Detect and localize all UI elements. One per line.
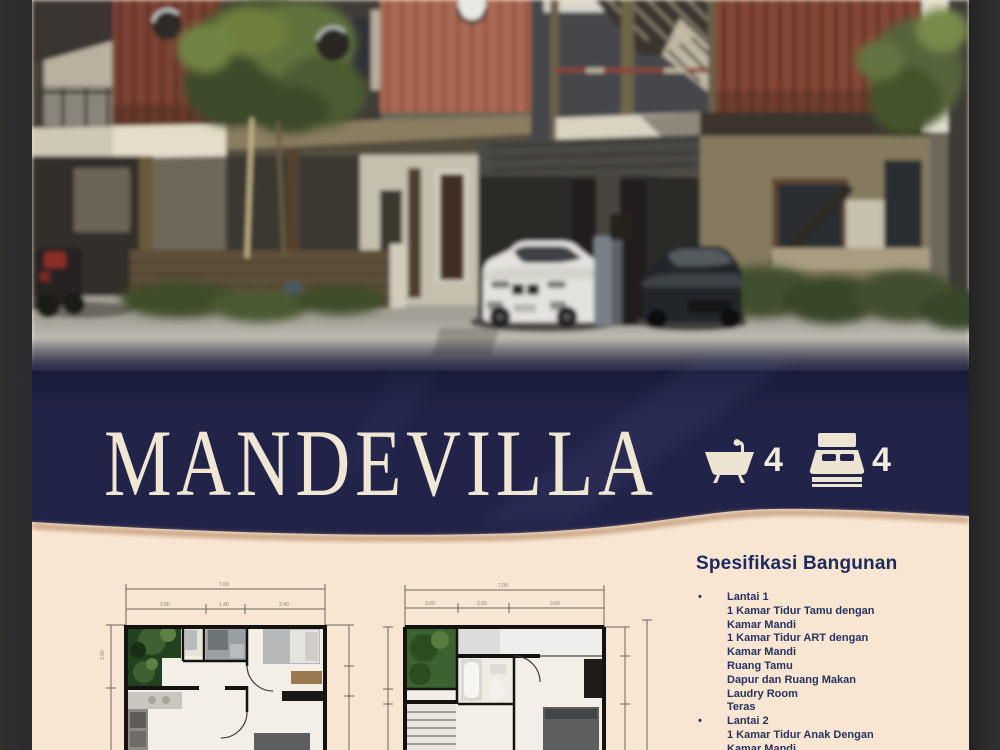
svg-text:4: 4 bbox=[872, 441, 891, 479]
svg-text:1.40: 1.40 bbox=[219, 602, 229, 608]
svg-text:MANDEVILLA: MANDEVILLA bbox=[104, 410, 658, 516]
svg-text:3.00: 3.00 bbox=[550, 601, 560, 607]
svg-text:3.00: 3.00 bbox=[425, 601, 435, 607]
svg-text:3.00: 3.00 bbox=[100, 650, 106, 660]
svg-text:2.00: 2.00 bbox=[477, 601, 487, 607]
svg-text:2.40: 2.40 bbox=[279, 602, 289, 608]
svg-text:7.00: 7.00 bbox=[219, 582, 229, 588]
svg-text:4: 4 bbox=[764, 441, 783, 479]
svg-text:7.00: 7.00 bbox=[498, 583, 508, 589]
svg-text:3.00: 3.00 bbox=[160, 602, 170, 608]
